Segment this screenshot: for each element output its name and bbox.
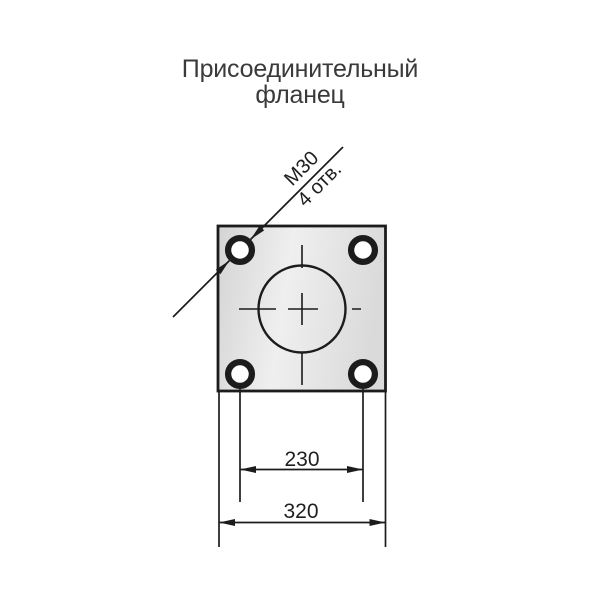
dimension-label-320: 320 bbox=[283, 500, 318, 523]
dim-320-arrow-right-icon bbox=[370, 519, 386, 526]
bolt-hole-bottom-right bbox=[348, 359, 378, 389]
bolt-hole-top-left bbox=[225, 235, 255, 265]
flange-technical-drawing: М30 4 отв. 230 320 bbox=[0, 0, 600, 600]
dim-230-arrow-right-icon bbox=[347, 466, 363, 473]
bolt-hole-bottom-left bbox=[225, 359, 255, 389]
bolt-hole-top-right bbox=[348, 235, 378, 265]
line-work bbox=[173, 147, 386, 547]
dim-230-arrow-left-icon bbox=[240, 466, 256, 473]
drawing-canvas: Присоединительный фланец bbox=[0, 0, 600, 600]
dim-320-arrow-left-icon bbox=[219, 519, 235, 526]
dimension-label-230: 230 bbox=[284, 448, 319, 471]
